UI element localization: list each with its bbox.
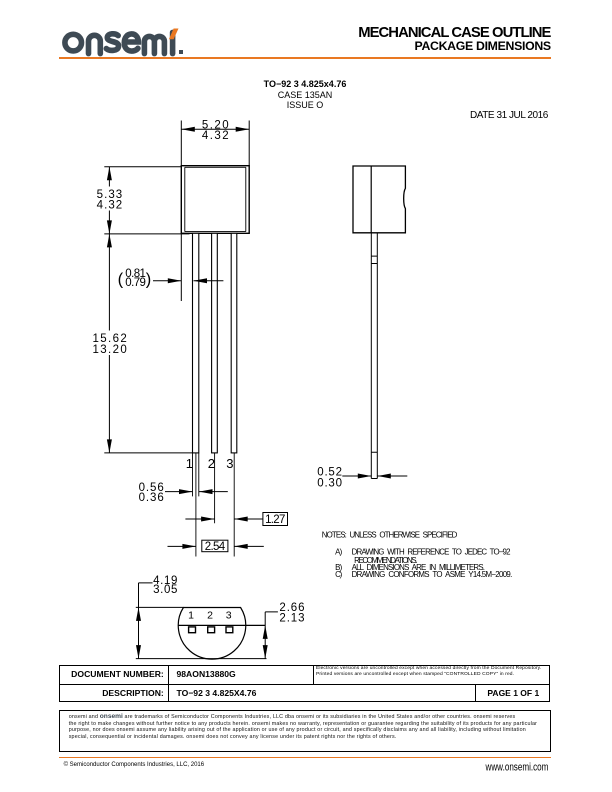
svg-text:2.13: 2.13	[279, 613, 304, 625]
svg-text:0.36: 0.36	[139, 492, 164, 504]
svg-text:4.32: 4.32	[202, 130, 229, 142]
svg-text:1: 1	[188, 610, 194, 622]
svg-text:A): A)	[335, 548, 343, 557]
svg-text:(: (	[118, 270, 124, 288]
svg-text:1: 1	[186, 456, 193, 471]
svg-text:2: 2	[207, 610, 213, 622]
svg-text:1.27: 1.27	[265, 514, 285, 526]
svg-text:): )	[146, 270, 152, 288]
svg-text:0.79: 0.79	[125, 277, 146, 289]
svg-text:DRAWING CONFORMS TO ASME Y14.5: DRAWING CONFORMS TO ASME Y14.5M−2009.	[352, 570, 514, 579]
svg-text:2.54: 2.54	[205, 541, 226, 553]
svg-text:13.20: 13.20	[93, 344, 127, 356]
svg-text:C): C)	[335, 570, 343, 579]
svg-text:4.32: 4.32	[97, 199, 123, 211]
svg-text:3: 3	[226, 610, 232, 622]
svg-text:3.05: 3.05	[153, 584, 177, 596]
svg-text:3: 3	[226, 456, 233, 471]
svg-text:0.30: 0.30	[317, 477, 342, 489]
svg-text:www.onsemi.com: www.onsemi.com	[485, 762, 549, 774]
svg-text:NOTES: UNLESS OTHERWISE SPECIF: NOTES: UNLESS OTHERWISE SPECIFIED	[322, 531, 459, 540]
svg-text:2: 2	[208, 456, 215, 471]
